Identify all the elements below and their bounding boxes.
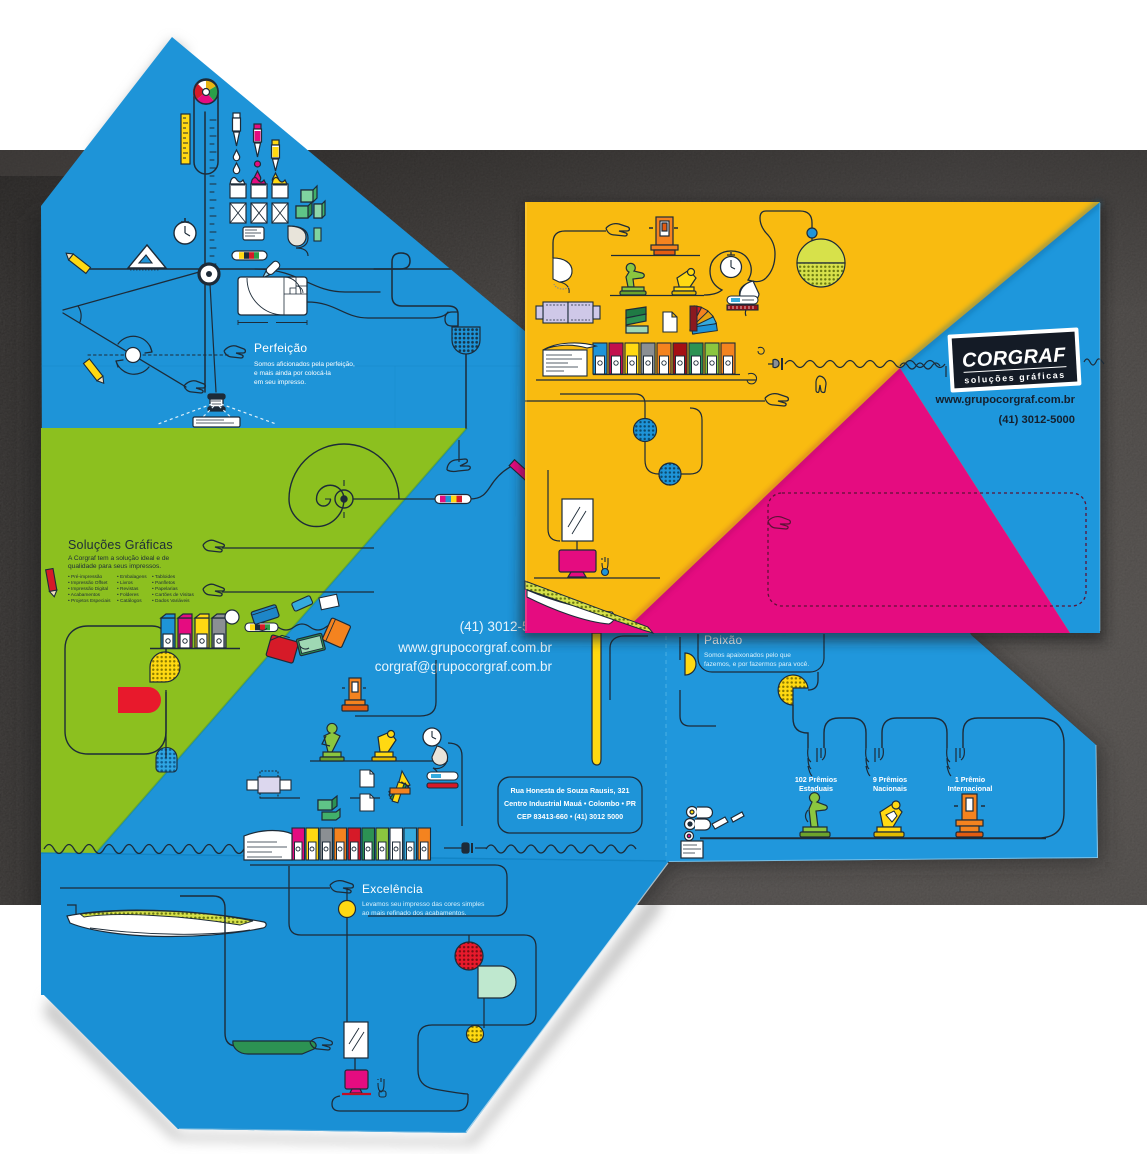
svg-text:• Embalagens: • Embalagens — [117, 574, 147, 580]
svg-text:• Acabamentos: • Acabamentos — [68, 592, 101, 598]
svg-text:A Corgraf tem a solução ideal: A Corgraf tem a solução ideal e de — [68, 555, 169, 562]
svg-text:em seu impresso.: em seu impresso. — [254, 379, 306, 386]
svg-text:Soluções Gráficas: Soluções Gráficas — [68, 538, 173, 552]
svg-text:• Impressão Offset: • Impressão Offset — [68, 580, 108, 586]
svg-text:• Folderes: • Folderes — [117, 592, 139, 598]
svg-text:Somos aficionados pela perfeiç: Somos aficionados pela perfeição, — [254, 361, 355, 368]
svg-text:• Catálogos: • Catálogos — [117, 598, 142, 604]
svg-text:corgraf@grupocorgraf.com.br: corgraf@grupocorgraf.com.br — [375, 659, 553, 674]
svg-text:Centro Industrial Mauá • Colom: Centro Industrial Mauá • Colombo • PR — [504, 799, 637, 808]
svg-text:• Tabloides: • Tabloides — [152, 574, 176, 580]
svg-text:(41) 3012-5000: (41) 3012-5000 — [998, 414, 1075, 426]
svg-text:CEP 83413-660 • (41) 3012 5000: CEP 83413-660 • (41) 3012 5000 — [517, 812, 623, 821]
svg-text:Perfeição: Perfeição — [254, 341, 307, 355]
svg-text:www.grupocorgraf.com.br: www.grupocorgraf.com.br — [935, 394, 1076, 406]
svg-text:• Revistas: • Revistas — [117, 586, 139, 592]
svg-text:e mais ainda por colocá-la: e mais ainda por colocá-la — [254, 370, 331, 377]
svg-text:102 Prêmios: 102 Prêmios — [795, 775, 837, 784]
svg-text:qualidade para seus impressos.: qualidade para seus impressos. — [68, 563, 161, 570]
svg-text:Estaduais: Estaduais — [799, 784, 833, 793]
svg-text:• Panfletos: • Panfletos — [152, 580, 176, 586]
svg-text:Levamos seu impresso das cores: Levamos seu impresso das cores simples — [362, 901, 485, 908]
svg-text:• Pré-impressão: • Pré-impressão — [68, 574, 103, 580]
svg-text:www.grupocorgraf.com.br: www.grupocorgraf.com.br — [397, 640, 552, 655]
svg-text:• Livros: • Livros — [117, 580, 133, 586]
svg-text:Somos apaixonados pelo que: Somos apaixonados pelo que — [704, 652, 791, 659]
svg-text:Excelência: Excelência — [362, 882, 423, 896]
svg-text:Nacionais: Nacionais — [873, 784, 907, 793]
svg-text:• Papelarias: • Papelarias — [152, 586, 178, 592]
svg-text:Internacional: Internacional — [948, 784, 993, 793]
svg-text:fazemos, e por fazermos para v: fazemos, e por fazermos para você. — [704, 661, 809, 668]
svg-text:9 Prêmios: 9 Prêmios — [873, 775, 907, 784]
svg-text:• Cartões de Visitas: • Cartões de Visitas — [152, 592, 194, 598]
svg-text:Rua Honesta de Souza Rausis, 3: Rua Honesta de Souza Rausis, 321 — [510, 786, 629, 795]
svg-text:• Dados Variáveis: • Dados Variáveis — [152, 598, 190, 604]
svg-text:• Projetos Especiais: • Projetos Especiais — [68, 598, 111, 604]
svg-text:ao mais refinado dos acabament: ao mais refinado dos acabamentos. — [362, 910, 467, 917]
svg-text:1 Prêmio: 1 Prêmio — [955, 775, 986, 784]
svg-text:• Impressão Digital: • Impressão Digital — [68, 586, 108, 592]
